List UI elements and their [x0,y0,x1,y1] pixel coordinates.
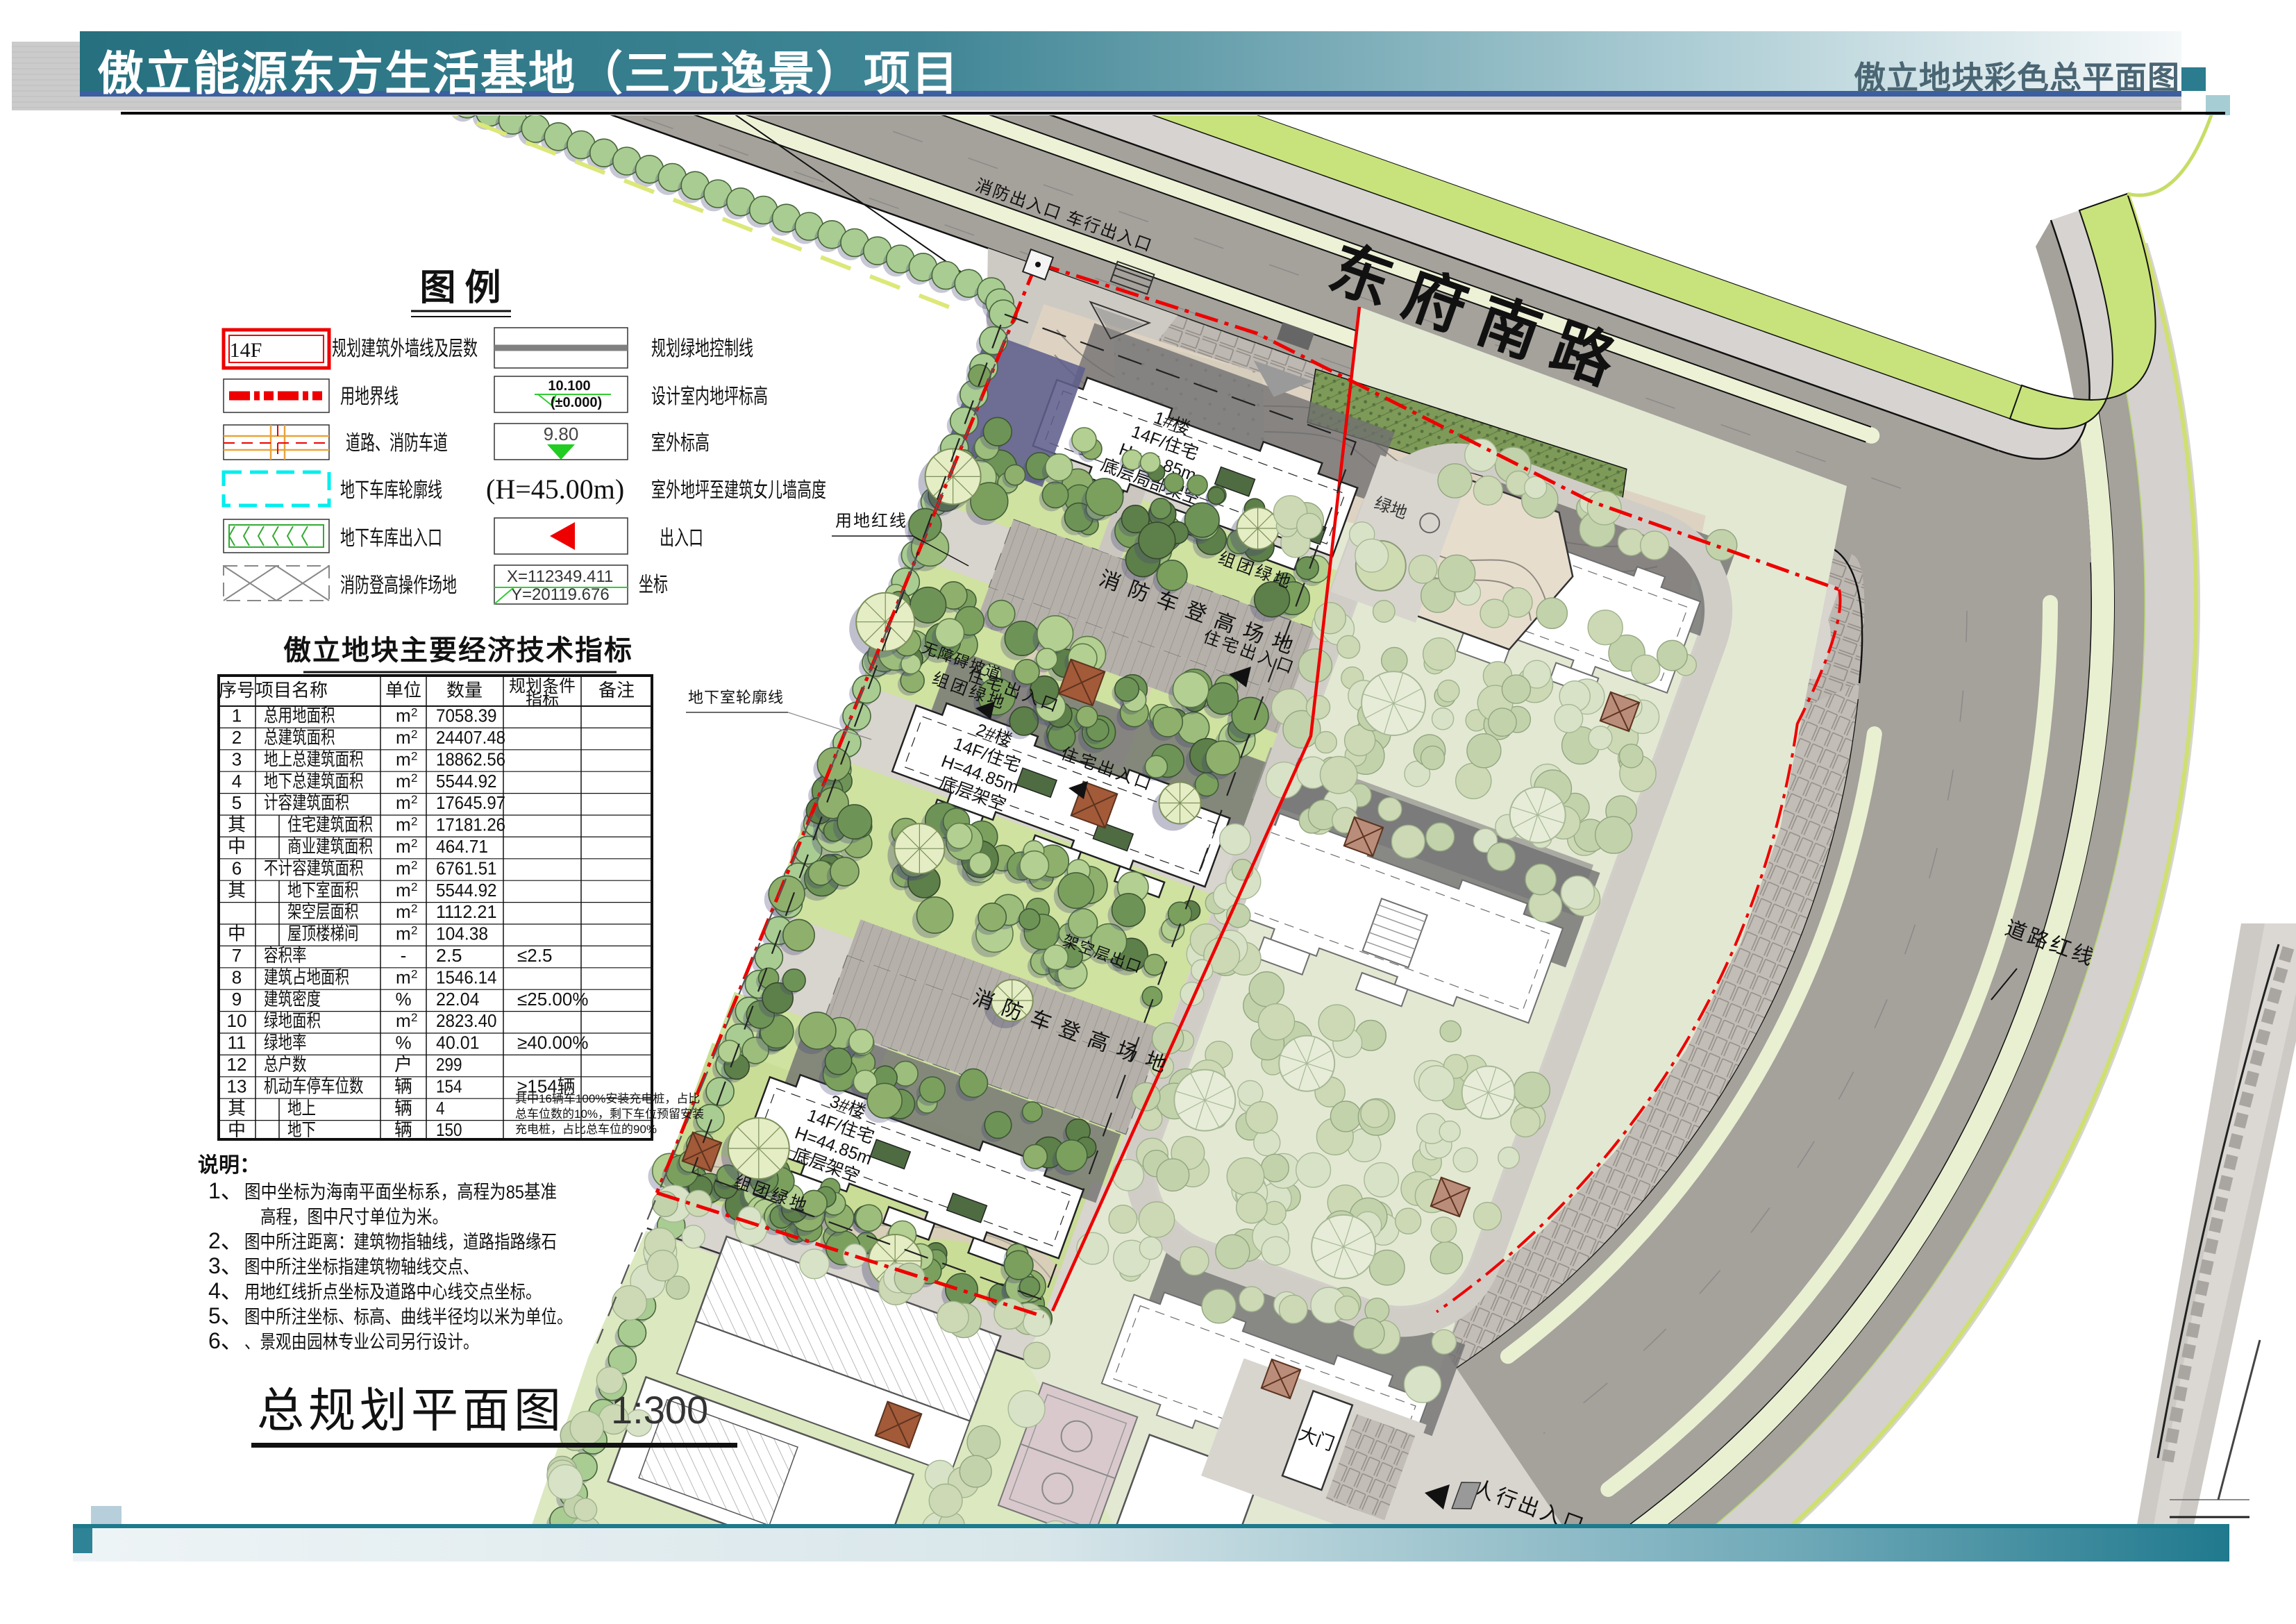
svg-text:5、: 5、 [208,1303,243,1328]
svg-text:图中所注坐标指建筑物轴线交点、: 图中所注坐标指建筑物轴线交点、 [244,1257,479,1278]
svg-text:1112.21: 1112.21 [436,901,497,922]
svg-text:架空层面积: 架空层面积 [287,901,359,922]
svg-text:其: 其 [228,1098,246,1119]
svg-text:总规划平面图: 总规划平面图 [257,1384,565,1437]
svg-text:3、: 3、 [208,1253,243,1278]
svg-text:道路、消防车道: 道路、消防车道 [346,432,448,455]
svg-text:4: 4 [232,771,242,792]
svg-text:用地红线: 用地红线 [835,512,907,530]
svg-text:用地界线: 用地界线 [340,385,399,408]
svg-text:辆: 辆 [394,1119,412,1140]
svg-text:m: m [396,923,411,944]
svg-text:项目名称: 项目名称 [255,680,328,701]
svg-text:不计容建筑面积: 不计容建筑面积 [264,857,364,878]
svg-text:坐标: 坐标 [639,574,668,596]
svg-text:设计室内地坪标高: 设计室内地坪标高 [651,385,768,408]
svg-text:高程，图中尺寸单位为米。: 高程，图中尺寸单位为米。 [260,1207,448,1228]
svg-text:≤2.5: ≤2.5 [517,945,552,966]
svg-text:18862.56: 18862.56 [436,748,505,769]
svg-text:机动车停车位数: 机动车停车位数 [264,1075,364,1096]
svg-text:傲立地块主要经济技术指标: 傲立地块主要经济技术指标 [283,635,633,666]
svg-text:2: 2 [411,902,417,915]
svg-text:图中坐标为海南平面坐标系，高程为85基准: 图中坐标为海南平面坐标系，高程为85基准 [244,1182,557,1203]
svg-text:40.01: 40.01 [436,1032,480,1053]
svg-text:2: 2 [411,728,417,741]
svg-text:2: 2 [411,858,417,871]
svg-text:地上总建筑面积: 地上总建筑面积 [264,748,364,769]
svg-text:建筑占地面积: 建筑占地面积 [264,966,349,987]
svg-text:Y=20119.676: Y=20119.676 [511,585,610,604]
svg-text:2823.40: 2823.40 [436,1010,497,1031]
svg-text:绿地面积: 绿地面积 [264,1010,321,1031]
svg-text:17645.97: 17645.97 [436,792,505,813]
svg-text:计容建筑面积: 计容建筑面积 [264,792,349,813]
svg-text:备注: 备注 [598,680,635,701]
svg-text:299: 299 [436,1054,462,1075]
svg-text:2: 2 [411,1011,417,1024]
svg-text:2: 2 [411,771,417,785]
svg-text:m: m [396,901,411,922]
svg-text:m: m [396,814,411,835]
svg-text:7: 7 [232,945,242,966]
svg-text:图中所注距离：建筑物指轴线，道路指路缘石: 图中所注距离：建筑物指轴线，道路指路缘石 [244,1232,557,1253]
svg-text:、景观由园林专业公司另行设计。: 、景观由园林专业公司另行设计。 [244,1332,479,1353]
svg-text:5544.92: 5544.92 [436,880,497,901]
svg-text:2: 2 [411,837,417,850]
svg-text:屋顶楼梯间: 屋顶楼梯间 [287,923,359,944]
svg-text:地下室面积: 地下室面积 [287,880,359,901]
svg-text:地下总建筑面积: 地下总建筑面积 [264,771,364,792]
svg-text:7058.39: 7058.39 [436,705,497,726]
svg-text:2: 2 [411,815,417,828]
svg-text:商业建筑面积: 商业建筑面积 [287,836,373,857]
svg-text:8: 8 [232,966,242,987]
svg-text:150: 150 [436,1119,462,1140]
svg-text:2、: 2、 [208,1228,243,1253]
svg-text:4、: 4、 [208,1278,243,1303]
svg-text:其中16辆车100%安装充电桩，占比: 其中16辆车100%安装充电桩，占比 [515,1092,700,1105]
svg-text:1: 1 [232,705,242,726]
svg-text:X=112349.411: X=112349.411 [507,567,613,586]
svg-text:数量: 数量 [446,680,483,701]
svg-text:图 例: 图 例 [419,268,501,308]
svg-text:说明：: 说明： [198,1154,260,1177]
svg-text:m: m [396,880,411,901]
svg-text:3: 3 [232,748,242,769]
svg-text:(±0.000): (±0.000) [551,395,602,410]
svg-text:1:300: 1:300 [611,1388,708,1432]
svg-text:建筑密度: 建筑密度 [264,989,321,1010]
svg-text:图中所注坐标、标高、曲线半径均以米为单位。: 图中所注坐标、标高、曲线半径均以米为单位。 [244,1307,573,1328]
svg-text:辆: 辆 [394,1075,412,1096]
svg-text:13: 13 [227,1075,247,1096]
svg-text:地上: 地上 [287,1098,316,1119]
svg-text:14F: 14F [230,339,262,362]
svg-text:m: m [396,966,411,987]
svg-text:6761.51: 6761.51 [436,857,497,878]
svg-text:4: 4 [436,1098,445,1119]
svg-text:消防登高操作场地: 消防登高操作场地 [340,574,457,597]
svg-text:m: m [396,1010,411,1031]
svg-text:154: 154 [436,1075,462,1096]
svg-text:用地红线折点坐标及道路中心线交点坐标。: 用地红线折点坐标及道路中心线交点坐标。 [244,1282,542,1303]
svg-text:5: 5 [232,792,242,813]
svg-text:m: m [396,836,411,857]
svg-text:11: 11 [228,1032,246,1053]
svg-text:其: 其 [228,814,246,835]
svg-text:2: 2 [411,706,417,719]
svg-text:出入口: 出入口 [660,527,703,550]
svg-text:其: 其 [228,880,246,901]
svg-text:≤25.00%: ≤25.00% [517,989,588,1010]
svg-text:总车位数的10%，剩下车位预留安装: 总车位数的10%，剩下车位预留安装 [515,1107,704,1121]
svg-text:5544.92: 5544.92 [436,771,497,792]
svg-text:(H=45.00m): (H=45.00m) [486,474,624,505]
svg-text:9: 9 [232,989,242,1010]
svg-text:12: 12 [227,1054,247,1075]
svg-text:22.04: 22.04 [436,989,480,1010]
svg-text:地下室轮廓线: 地下室轮廓线 [688,689,784,706]
svg-text:2: 2 [411,924,417,937]
svg-text:中: 中 [228,923,246,944]
svg-text:住宅建筑面积: 住宅建筑面积 [287,814,373,835]
svg-text:-: - [401,945,407,966]
svg-text:总建筑面积: 总建筑面积 [264,727,335,748]
svg-text:m: m [396,705,411,726]
svg-text:%: % [395,989,411,1010]
svg-text:绿地率: 绿地率 [264,1032,307,1053]
svg-text:中: 中 [228,836,246,857]
svg-text:2: 2 [232,727,242,748]
svg-text:辆: 辆 [394,1098,412,1119]
svg-text:6、: 6、 [208,1328,243,1353]
svg-text:单位: 单位 [385,680,421,701]
svg-text:9.80: 9.80 [544,424,579,444]
svg-text:m: m [396,792,411,813]
svg-text:≥40.00%: ≥40.00% [517,1032,588,1053]
svg-text:24407.48: 24407.48 [436,727,505,748]
svg-text:户: 户 [394,1054,412,1075]
svg-text:104.38: 104.38 [436,923,488,944]
svg-text:6: 6 [232,857,242,878]
svg-text:序号: 序号 [219,680,255,701]
svg-text:中: 中 [228,1119,246,1140]
svg-text:m: m [396,771,411,792]
svg-text:2.5: 2.5 [436,945,462,966]
svg-text:室外地坪至建筑女儿墙高度: 室外地坪至建筑女儿墙高度 [651,479,826,502]
svg-text:地下: 地下 [287,1119,316,1140]
svg-text:规划建筑外墙线及层数: 规划建筑外墙线及层数 [332,337,478,360]
svg-text:容积率: 容积率 [264,945,307,966]
svg-text:m: m [396,748,411,769]
svg-text:地下车库出入口: 地下车库出入口 [340,527,442,550]
svg-text:总用地面积: 总用地面积 [264,705,335,726]
svg-text:2: 2 [411,880,417,894]
svg-text:地下车库轮廓线: 地下车库轮廓线 [340,479,442,502]
svg-text:m: m [396,857,411,878]
svg-text:17181.26: 17181.26 [436,814,505,835]
svg-text:2: 2 [411,793,417,806]
svg-text:充电桩，占比总车位的90%: 充电桩，占比总车位的90% [515,1123,657,1136]
svg-text:总户数: 总户数 [264,1054,307,1075]
svg-text:2: 2 [411,749,417,762]
svg-text:m: m [396,727,411,748]
svg-text:规划绿地控制线: 规划绿地控制线 [651,337,753,360]
svg-text:2: 2 [411,967,417,980]
svg-text:10: 10 [227,1010,247,1031]
svg-text:464.71: 464.71 [436,836,488,857]
svg-text:1546.14: 1546.14 [436,966,497,987]
svg-text:室外标高: 室外标高 [651,432,710,455]
svg-text:1、: 1、 [208,1178,243,1203]
svg-text:%: % [395,1032,411,1053]
svg-text:10.100: 10.100 [548,378,590,394]
